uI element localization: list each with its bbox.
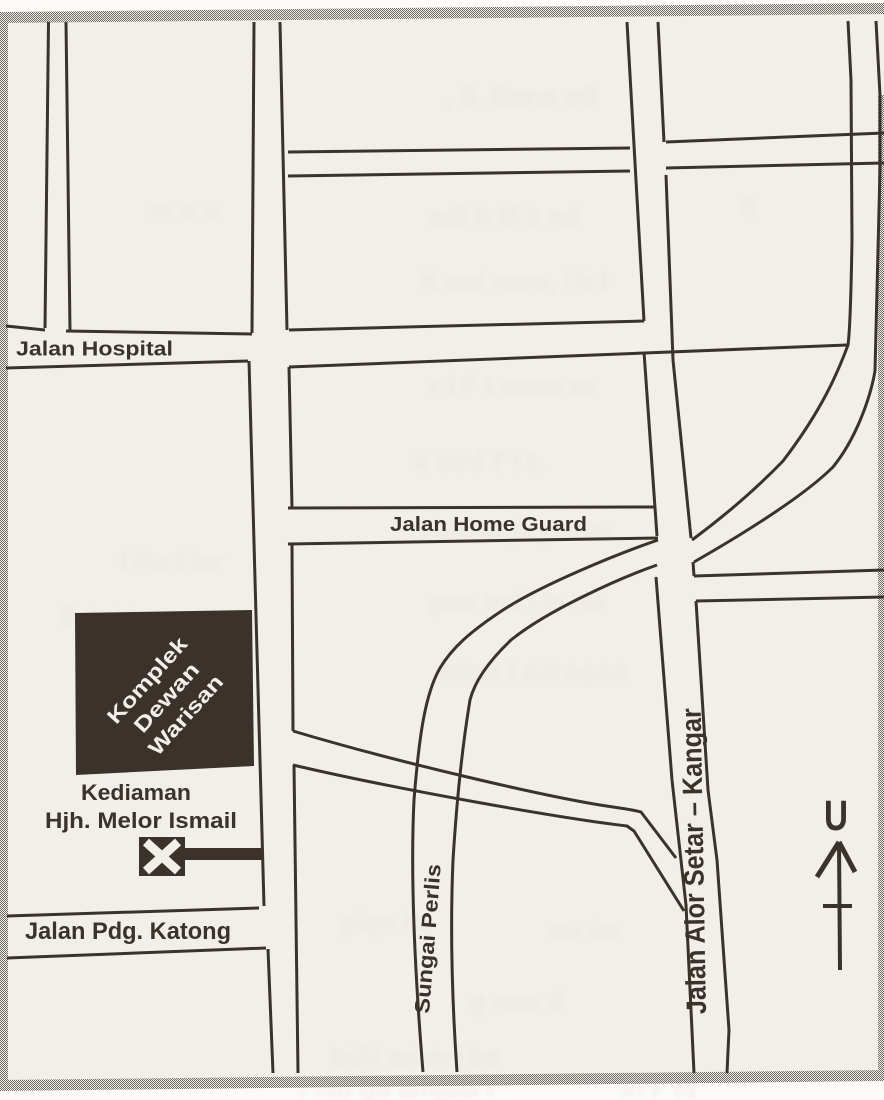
svg-text:r l F t nnne m: r l F t nnne m <box>430 371 593 401</box>
svg-text:adl h M k nd: adl h M k nd <box>430 201 580 231</box>
svg-text:Jalan Home Guard: Jalan Home Guard <box>390 514 587 536</box>
svg-text:Hjh. Melor Ismail: Hjh. Melor Ismail <box>45 808 237 833</box>
svg-text:nu ita: nu ita <box>550 916 620 946</box>
svg-text:tnAl an m l ba: tnAl an m l ba <box>330 1041 501 1071</box>
svg-text:l Ha t lar: l Ha t lar <box>120 546 223 576</box>
svg-text:, S. Gana w3: , S. Gana w3 <box>445 81 598 111</box>
svg-text:k mnl T l L: k mnl T l L <box>415 446 544 476</box>
svg-text:Jalan Alor Setar – Kangar: Jalan Alor Setar – Kangar <box>676 708 712 1015</box>
svg-text:U: U <box>824 792 848 840</box>
svg-text:fi: fi <box>740 191 756 221</box>
svg-text:Kediaman: Kediaman <box>81 780 191 805</box>
svg-text:Jalan Hospital: Jalan Hospital <box>16 339 173 361</box>
svg-text:K uat naro, l h l: K uat naro, l h l <box>420 266 608 296</box>
svg-text:Jalan Pdg. Katong: Jalan Pdg. Katong <box>25 918 231 945</box>
svg-text:g nno d: g nno d <box>470 986 564 1016</box>
svg-text:mhal l aal agon: mhal l aal agon <box>440 656 628 686</box>
svg-text:at n u: at n u <box>150 196 219 226</box>
